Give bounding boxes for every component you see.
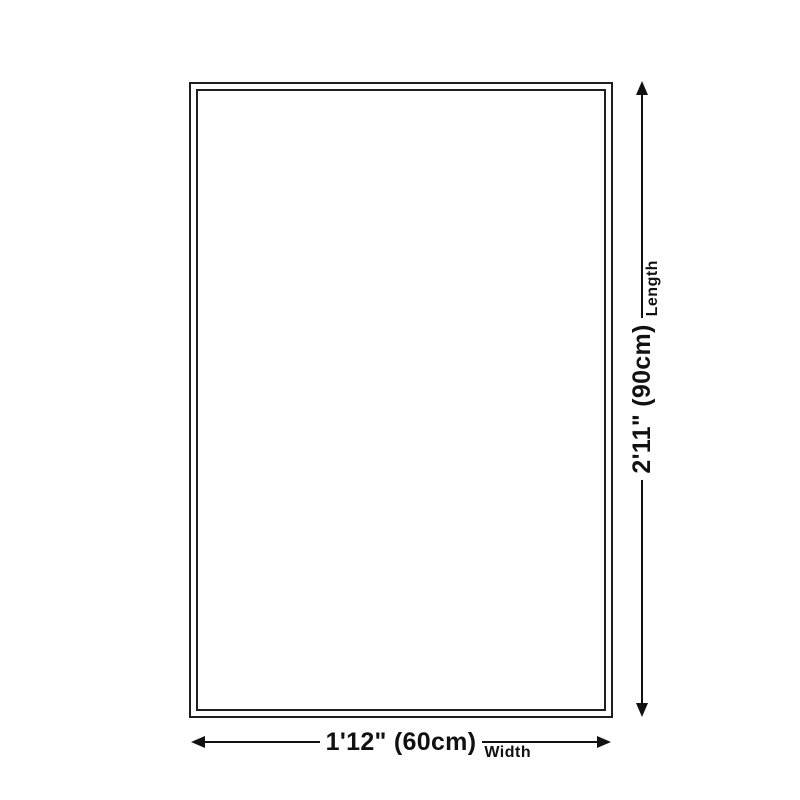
- length-dimension-indicator: 2'11" (90cm) Length: [597, 81, 687, 717]
- width-axis-label: Width: [484, 745, 531, 761]
- width-dimension-line-left: [205, 741, 320, 743]
- arrow-down-icon: [636, 703, 648, 717]
- rug-outer-border: [189, 82, 613, 718]
- length-value: 2'11" (90cm): [630, 324, 655, 473]
- arrow-left-icon: [191, 736, 205, 748]
- width-dimension-indicator: 1'12" (60cm) Width: [191, 697, 611, 787]
- length-axis-label: Length: [645, 260, 661, 316]
- width-dimension-line-right: Width: [482, 741, 597, 743]
- arrow-right-icon: [597, 736, 611, 748]
- length-dimension-line-lower: [641, 480, 643, 703]
- rug-inner-border: [196, 89, 606, 711]
- length-dimension-line-upper: Length: [641, 95, 643, 318]
- arrow-up-icon: [636, 81, 648, 95]
- width-value: 1'12" (60cm): [326, 730, 477, 755]
- dimension-diagram: 2'11" (90cm) Length 1'12" (60cm) Width: [0, 0, 800, 800]
